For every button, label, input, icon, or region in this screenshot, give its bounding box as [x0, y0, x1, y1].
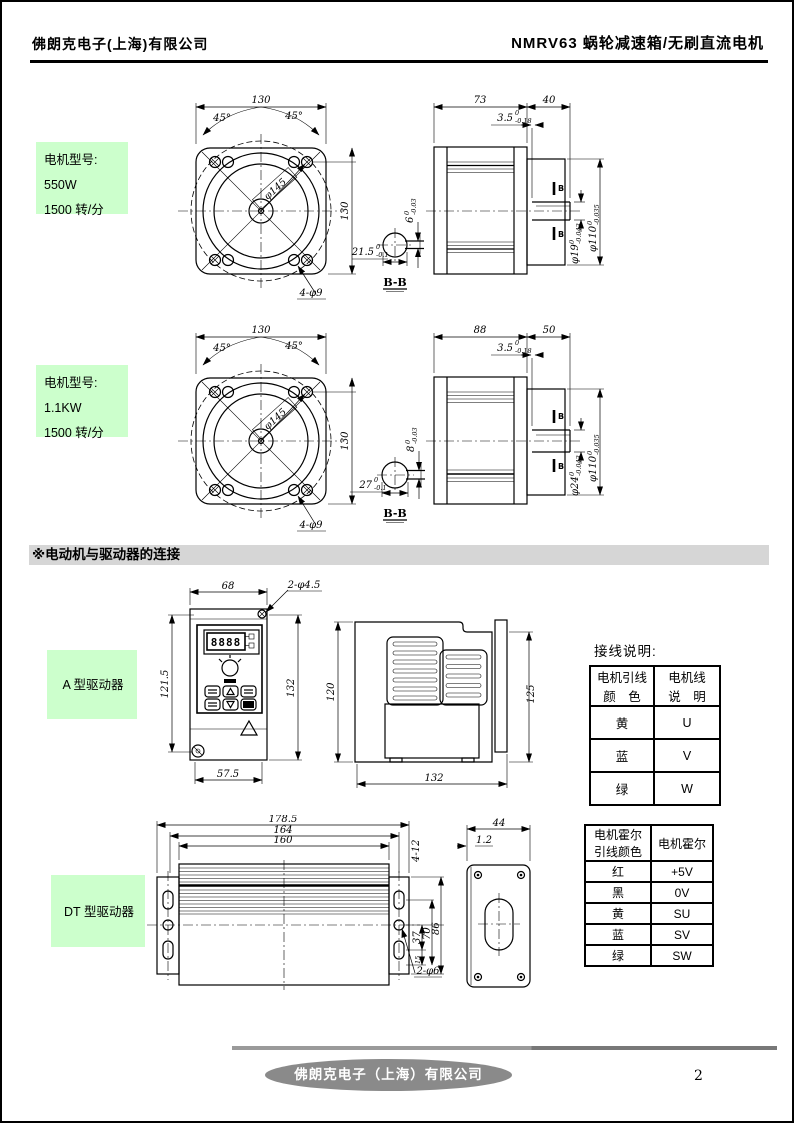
header-rule — [30, 60, 768, 63]
table-row: 蓝 V — [590, 739, 720, 772]
svg-text:6: 6 — [405, 216, 416, 223]
table-header-cell: 电机霍尔 — [651, 825, 713, 861]
dim-15: 15 — [414, 956, 422, 964]
warning-triangle-icon — [241, 721, 257, 735]
dim-angle-left: 45° — [212, 113, 231, 124]
header-line: 引线颜色 — [586, 843, 650, 860]
dim-body-length: 73 — [474, 95, 487, 106]
knob-icon — [222, 660, 238, 676]
table-row: 绿 SW — [585, 945, 713, 966]
table-header-row: 电机霍尔 引线颜色 电机霍尔 — [585, 825, 713, 861]
dim-holes: 2-φ6 — [415, 966, 440, 977]
table-cell: 黄 — [585, 903, 651, 924]
dim-angle-right: 45° — [284, 341, 303, 352]
section-marker-bottom: B — [558, 230, 564, 239]
footer-company-badge: 佛朗克电子（上海）有限公司 — [265, 1059, 512, 1091]
svg-text:-0.1: -0.1 — [376, 251, 389, 259]
dim-key-width: 8 0 -0.03 — [404, 427, 419, 452]
driver-dt-front-view: 178.5 164 160 4-12 37 15 — [147, 815, 444, 990]
driver-dt-drawing: 178.5 164 160 4-12 37 15 — [142, 815, 582, 1015]
dim-spigot-dia: φ110 0 -0.035 — [586, 434, 601, 482]
wiring-title: 接线说明: — [594, 640, 657, 660]
dim-bottom-width: 57.5 — [217, 769, 239, 780]
dim-key-offset: 21.5 — [351, 247, 374, 258]
svg-text:120: 120 — [326, 682, 337, 702]
svg-text:-0.03: -0.03 — [410, 198, 418, 215]
svg-text:φ145: φ145 — [262, 407, 289, 433]
dim-shaft-length: 40 — [542, 95, 556, 106]
svg-text:130: 130 — [340, 201, 351, 221]
driver-dt-side-view: 44 1.2 — [457, 818, 530, 987]
motor-1100w-side-view: B B 88 50 3.5 0 -0.18 φ110 0 -0.035 — [426, 325, 604, 504]
dim-key-length: 3.5 — [497, 113, 513, 124]
svg-text:121.5: 121.5 — [160, 670, 171, 699]
table-cell: SV — [651, 924, 713, 945]
driver-a-side-view: 120 125 132 — [326, 620, 537, 788]
table-row: 红 +5V — [585, 861, 713, 882]
dim-holes: 4-φ9 — [298, 520, 323, 531]
dim-side-width: 132 — [424, 773, 443, 784]
label-line: 550W — [44, 173, 122, 198]
dim-angle-left: 45° — [212, 343, 231, 354]
dim-slots: 4-12 — [411, 840, 422, 863]
svg-text:-0.043: -0.043 — [575, 223, 583, 244]
motor-wire-table: 电机引线 颜 色 电机线 说 明 黄 U 蓝 V 绿 W — [589, 665, 721, 806]
motor-550w-side-view: B B 73 40 3.5 0 -0.18 φ110 0 -0.035 — [426, 95, 604, 274]
svg-text:-0.18: -0.18 — [515, 117, 532, 125]
page-title: NMRV63 蜗轮减速箱/无刷直流电机 — [511, 32, 764, 53]
dim-shaft-length: 50 — [543, 325, 556, 336]
header-line: 电机线 — [655, 667, 719, 686]
display-digits: 8888 — [211, 636, 242, 649]
dim-shaft-dia: φ19 0 -0.043 — [568, 223, 583, 264]
dim-side-height-left: 120 — [326, 682, 337, 702]
table-cell: 蓝 — [590, 739, 654, 772]
down-arrow-icon — [227, 702, 234, 708]
dim-angle-right: 45° — [284, 111, 303, 122]
svg-text:125: 125 — [526, 684, 537, 703]
svg-text:-0.035: -0.035 — [593, 204, 601, 225]
footer-rule — [232, 1046, 777, 1050]
motor-550w-drawing: 130 45° 45° φ145 130 21.5 0 -0.1 4-φ9 — [150, 90, 662, 322]
label-line: 电机型号: — [44, 148, 122, 173]
motor-1100w-drawing: 130 45° 45° φ145 130 27 0 -0.1 4-φ9 — [150, 320, 662, 542]
svg-text:86: 86 — [431, 922, 442, 935]
table-cell: 0V — [651, 882, 713, 903]
svg-text:130: 130 — [340, 431, 351, 451]
section-marker-top: B — [558, 184, 564, 193]
dim-body-length: 88 — [474, 325, 487, 336]
label-line: 1.1KW — [44, 396, 122, 421]
table-cell: +5V — [651, 861, 713, 882]
table-row: 黄 SU — [585, 903, 713, 924]
dim-height-right: 132 — [286, 678, 297, 697]
svg-text:φ145: φ145 — [262, 177, 289, 203]
header-line: 电机霍尔 — [586, 826, 650, 843]
label-line: 1500 转/分 — [44, 198, 122, 223]
svg-text:15: 15 — [414, 956, 422, 964]
dim-spigot-dia: φ110 0 -0.035 — [586, 204, 601, 252]
header-line: 颜 色 — [591, 686, 653, 705]
dim-front-width: 130 — [251, 95, 271, 106]
dim-key-offset: 27 — [358, 480, 372, 491]
header-company: 佛朗克电子(上海)有限公司 — [32, 34, 208, 54]
driver-dt-label: DT 型驱动器 — [51, 875, 145, 947]
dim-holes: 4-φ9 — [298, 288, 323, 299]
svg-text:132: 132 — [286, 678, 297, 697]
svg-text:4-12: 4-12 — [411, 840, 422, 863]
label-text: DT 型驱动器 — [64, 900, 134, 925]
datasheet-page: 佛朗克电子(上海)有限公司 NMRV63 蜗轮减速箱/无刷直流电机 电机型号: … — [0, 0, 794, 1123]
section-label: B-B — [383, 276, 406, 289]
table-cell: SW — [651, 945, 713, 966]
dim-overall-width: 178.5 — [269, 815, 298, 825]
label-line: 电机型号: — [44, 371, 122, 396]
section-marker-top: B — [558, 412, 564, 421]
svg-text:-0.18: -0.18 — [515, 347, 532, 355]
dim-front-height: 130 — [340, 201, 351, 221]
svg-text:8: 8 — [406, 446, 417, 452]
motor-1100w-label: 电机型号: 1.1KW 1500 转/分 — [36, 365, 128, 437]
table-cell: 黑 — [585, 882, 651, 903]
section-title: ※电动机与驱动器的连接 — [29, 545, 769, 565]
table-cell: 红 — [585, 861, 651, 882]
table-cell: W — [654, 772, 720, 805]
table-cell: 黄 — [590, 706, 654, 739]
svg-text:-0.1: -0.1 — [374, 484, 387, 492]
motor-1100w-section-bb: 8 0 -0.03 B-B — [377, 427, 425, 522]
dim-front-width: 130 — [251, 325, 271, 336]
table-header-cell: 电机引线 颜 色 — [590, 666, 654, 706]
motor-550w-label: 电机型号: 550W 1500 转/分 — [36, 142, 128, 214]
dim-holes: 2-φ4.5 — [287, 580, 321, 591]
dim-key-length: 3.5 — [497, 343, 513, 354]
svg-text:0: 0 — [515, 109, 519, 117]
dim-height-left: 121.5 — [160, 670, 171, 699]
header-line: 电机引线 — [591, 667, 653, 686]
table-cell: V — [654, 739, 720, 772]
dim-width: 68 — [222, 581, 235, 592]
stop-button-icon — [243, 701, 254, 708]
dim-front-height: 130 — [340, 431, 351, 451]
motor-550w-front-view: 130 45° 45° φ145 130 21.5 0 -0.1 4-φ9 — [178, 95, 389, 299]
table-row: 绿 W — [590, 772, 720, 805]
svg-text:-0.03: -0.03 — [411, 427, 419, 444]
label-line: 1500 转/分 — [44, 421, 122, 446]
dim-side-thickness: 1.2 — [476, 835, 492, 846]
dim-inner-width: 160 — [273, 835, 293, 846]
dim-side-height-right: 125 — [526, 684, 537, 703]
svg-text:φ110: φ110 — [588, 455, 599, 482]
table-cell: U — [654, 706, 720, 739]
table-row: 黄 U — [590, 706, 720, 739]
motor-550w-section-bb: 6 0 -0.03 B-B — [378, 198, 424, 291]
section-label: B-B — [383, 507, 406, 520]
label-text: A 型驱动器 — [62, 673, 123, 698]
svg-text:-0.035: -0.035 — [593, 434, 601, 455]
svg-text:φ110: φ110 — [588, 225, 599, 252]
table-row: 蓝 SV — [585, 924, 713, 945]
dim-key-width: 6 0 -0.03 — [403, 198, 418, 223]
up-arrow-icon — [227, 689, 234, 695]
driver-a-drawing: 8888 68 2-φ4.5 — [142, 580, 572, 792]
table-header-cell: 电机霍尔 引线颜色 — [585, 825, 651, 861]
hall-wire-table: 电机霍尔 引线颜色 电机霍尔 红 +5V 黑 0V 黄 SU 蓝 SV 绿 SW — [584, 824, 714, 967]
svg-text:0: 0 — [374, 476, 378, 484]
svg-text:-0.043: -0.043 — [575, 455, 583, 476]
page-number: 2 — [694, 1068, 703, 1084]
table-header-cell: 电机线 说 明 — [654, 666, 720, 706]
table-header-row: 电机引线 颜 色 电机线 说 明 — [590, 666, 720, 706]
section-marker-bottom: B — [558, 462, 564, 471]
dim-shaft-dia: φ24 0 -0.043 — [568, 455, 583, 496]
svg-text:φ24: φ24 — [570, 476, 581, 496]
dim-86: 86 — [431, 922, 442, 935]
svg-text:φ19: φ19 — [570, 244, 581, 264]
table-row: 黑 0V — [585, 882, 713, 903]
svg-text:0: 0 — [515, 339, 519, 347]
table-cell: 蓝 — [585, 924, 651, 945]
header-line: 说 明 — [655, 686, 719, 705]
table-cell: 绿 — [585, 945, 651, 966]
svg-text:0: 0 — [376, 243, 380, 251]
driver-a-front-view: 8888 68 2-φ4.5 — [160, 580, 322, 784]
motor-1100w-front-view: 130 45° 45° φ145 130 27 0 -0.1 4-φ9 — [178, 325, 387, 531]
dim-side-width: 44 — [492, 818, 506, 829]
table-cell: SU — [651, 903, 713, 924]
table-cell: 绿 — [590, 772, 654, 805]
driver-a-label: A 型驱动器 — [47, 650, 137, 719]
